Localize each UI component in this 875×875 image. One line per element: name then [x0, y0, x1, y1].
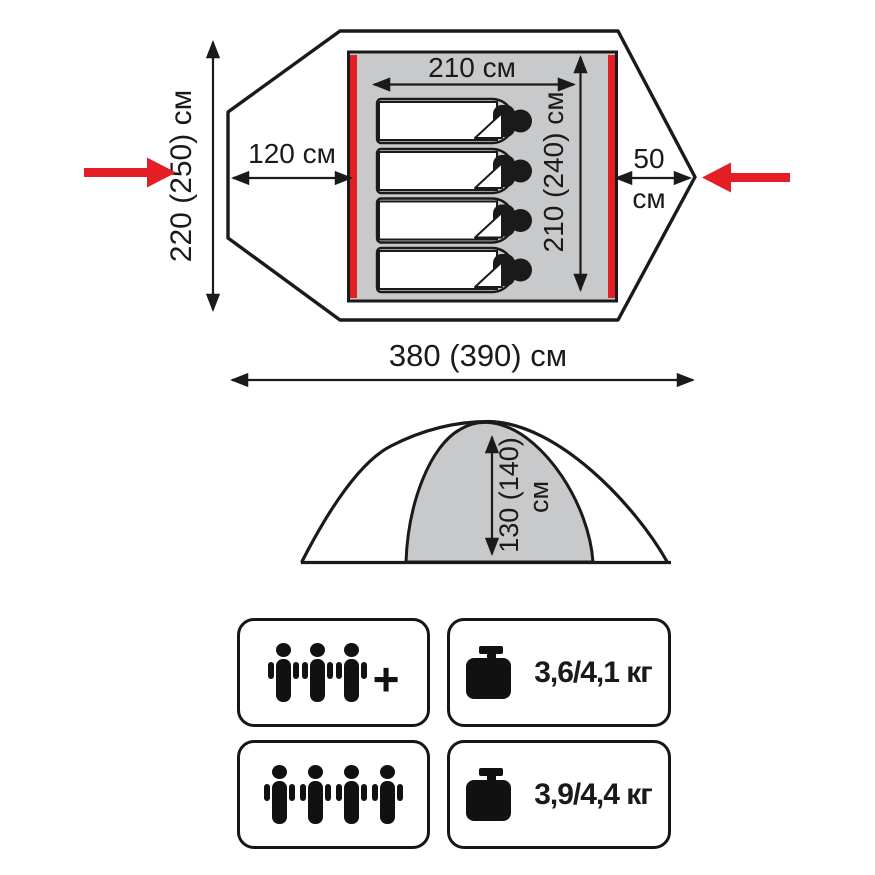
weight-max-value: 3,9/4,4 кг: [534, 778, 652, 812]
height-value-label: 130 (140): [494, 437, 524, 553]
sleeping-bag-1: [377, 99, 532, 143]
weight-icon: [466, 646, 512, 699]
inner-length-label: 210 (240) см: [538, 92, 569, 253]
right-vestibule-value: 50: [633, 143, 664, 174]
spec-capacity-min-box: +: [237, 618, 430, 727]
capacity-min-icons: +: [268, 643, 400, 702]
inner-width-label: 210 см: [428, 52, 516, 83]
person-icon: [336, 643, 367, 702]
spec-weight-min-box: 3,6/4,1 кг: [447, 618, 671, 727]
left-vestibule-label: 120 см: [248, 138, 336, 169]
entrance-arrow-right-icon: [702, 163, 790, 193]
plus-sign: +: [373, 656, 400, 702]
spec-weight-max-box: 3,9/4,4 кг: [447, 740, 671, 849]
tent-top-view: 220 (250) см 120 см 210 см 210 (240) см …: [84, 31, 790, 380]
tent-side-view: 130 (140) см: [301, 422, 671, 563]
weight-min-row: 3,6/4,1 кг: [466, 646, 652, 699]
sleeping-bag-2: [377, 149, 532, 193]
weight-icon: [466, 768, 512, 821]
weight-min-value: 3,6/4,1 кг: [534, 656, 652, 690]
sleeping-bag-4: [377, 248, 532, 292]
entrance-arrow-left-icon: [84, 158, 176, 188]
sleeping-bag-3: [377, 199, 532, 243]
weight-max-row: 3,9/4,4 кг: [466, 768, 652, 821]
spec-grid: + 3,6/4,1 кг 3,9/4,4 кг: [237, 618, 671, 849]
tent-diagrams: 220 (250) см 120 см 210 см 210 (240) см …: [0, 0, 875, 600]
person-icon: [372, 765, 403, 824]
spec-capacity-max-box: [237, 740, 430, 849]
person-icon: [268, 643, 299, 702]
person-icon: [336, 765, 367, 824]
person-icon: [264, 765, 295, 824]
right-vestibule-unit: см: [632, 183, 665, 214]
total-length-label: 380 (390) см: [389, 338, 567, 373]
tent-spec-diagram: 220 (250) см 120 см 210 см 210 (240) см …: [0, 0, 875, 875]
height-unit-label: см: [524, 481, 554, 513]
person-icon: [302, 643, 333, 702]
capacity-max-icons: [264, 765, 403, 824]
person-icon: [300, 765, 331, 824]
total-width-label: 220 (250) см: [165, 90, 198, 262]
